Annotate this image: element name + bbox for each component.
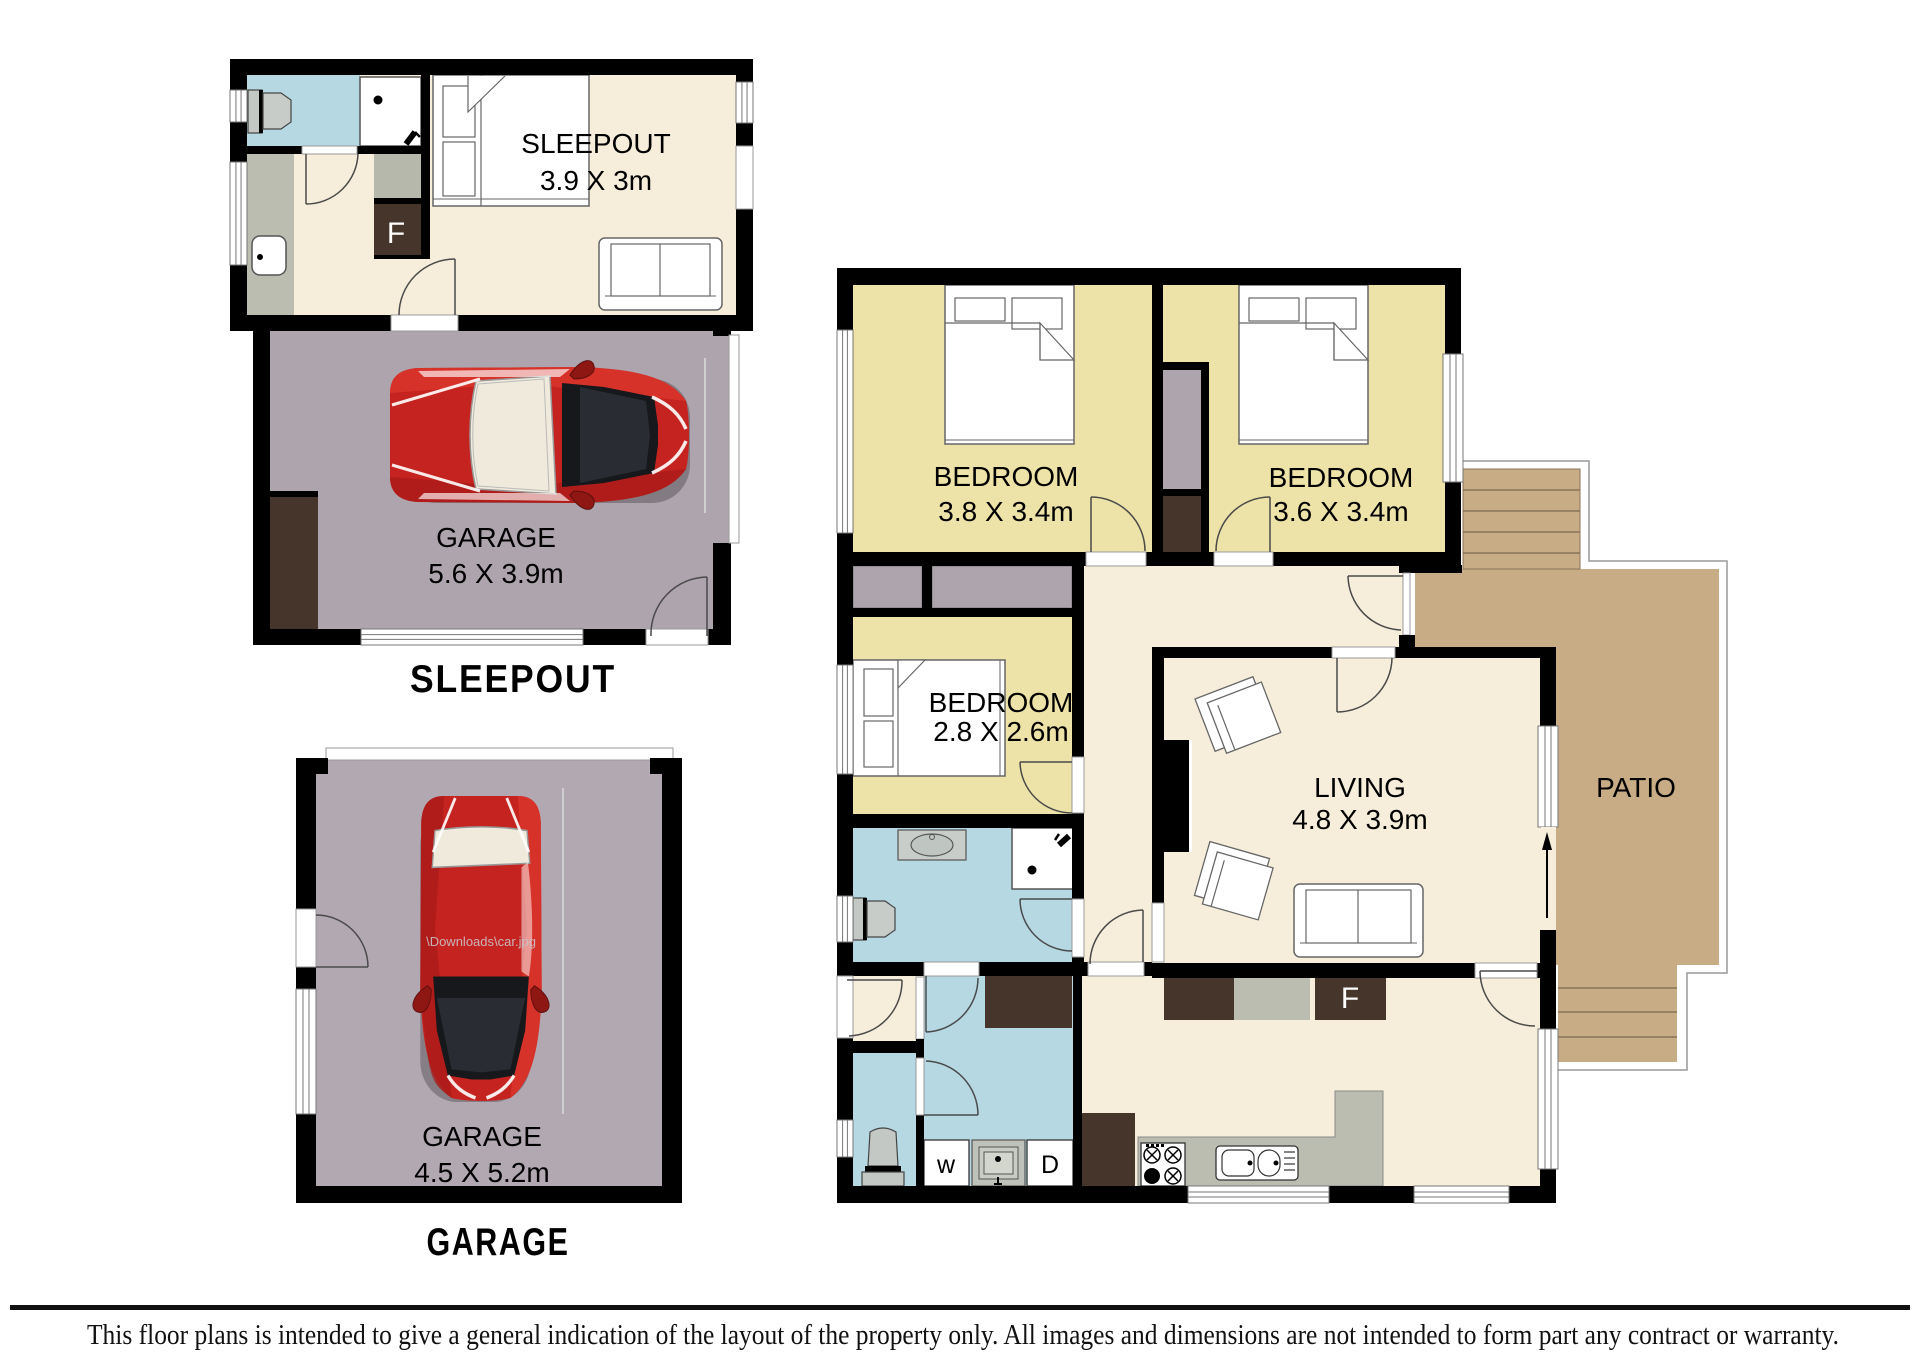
svg-text:\Downloads\car.jpg: \Downloads\car.jpg (426, 934, 536, 949)
svg-text:F: F (387, 217, 405, 250)
svg-text:4.8 X 3.9m: 4.8 X 3.9m (1292, 804, 1427, 835)
svg-text:GARAGE: GARAGE (427, 1221, 570, 1264)
svg-text:SLEEPOUT: SLEEPOUT (410, 658, 616, 701)
svg-text:3.9 X 3m: 3.9 X 3m (540, 165, 652, 196)
svg-text:BEDROOM: BEDROOM (1269, 462, 1414, 493)
svg-text:2.8 X 2.6m: 2.8 X 2.6m (933, 716, 1068, 747)
svg-text:BEDROOM: BEDROOM (929, 687, 1074, 718)
svg-text:4.5 X 5.2m: 4.5 X 5.2m (414, 1157, 549, 1188)
svg-text:5.6 X 3.9m: 5.6 X 3.9m (428, 558, 563, 589)
svg-text:D: D (1041, 1151, 1059, 1179)
svg-text:3.6 X 3.4m: 3.6 X 3.4m (1273, 496, 1408, 527)
svg-text:BEDROOM: BEDROOM (934, 461, 1079, 492)
svg-text:This floor plans is intended t: This floor plans is intended to give a g… (87, 1320, 1839, 1351)
svg-text:w: w (936, 1151, 956, 1179)
svg-text:F: F (1341, 982, 1359, 1015)
svg-text:3.8 X 3.4m: 3.8 X 3.4m (938, 496, 1073, 527)
svg-text:GARAGE: GARAGE (436, 522, 556, 553)
svg-text:GARAGE: GARAGE (422, 1121, 542, 1152)
svg-text:SLEEPOUT: SLEEPOUT (521, 128, 670, 159)
svg-text:PATIO: PATIO (1596, 772, 1676, 803)
svg-text:LIVING: LIVING (1314, 772, 1406, 803)
